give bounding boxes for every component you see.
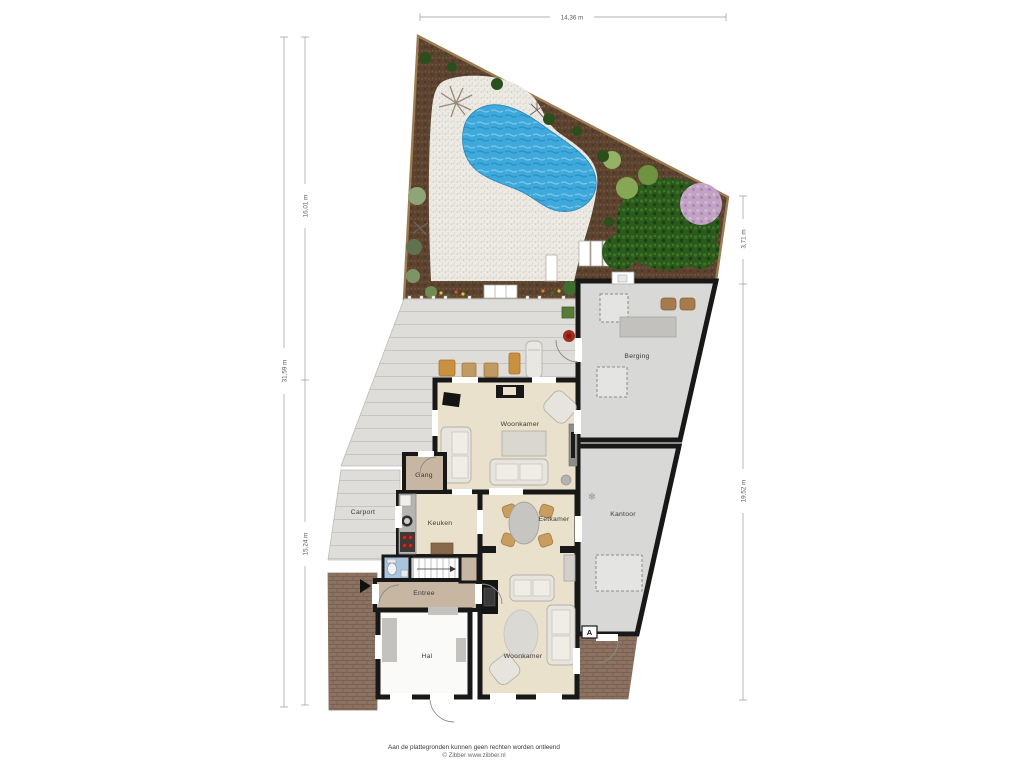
garden [404, 36, 728, 300]
dim-width-top: 14,36 m [561, 15, 584, 22]
dim-right-upper: 3,71 m [740, 229, 747, 248]
dim-left-upper: 16,01 m [302, 195, 309, 218]
section-marker-a-label: A [587, 628, 593, 637]
label-kantoor: Kantoor [610, 511, 636, 518]
divider-wall-right [560, 546, 577, 553]
label-berging: Berging [624, 353, 649, 360]
divider-wall-left [480, 546, 496, 553]
footer-disclaimer: Aan de plattegronden kunnen geen rechten… [388, 744, 560, 751]
bathroom [383, 556, 410, 580]
section-marker-a: A [582, 626, 597, 638]
label-woonkamer-top: Woonkamer [501, 421, 540, 428]
floorplan-page: A ❄ Woonkamer Berging Gang Carport Keuke… [0, 0, 1024, 768]
kantoor-skylight [596, 555, 642, 591]
dim-left-lower: 15,24 m [302, 533, 309, 556]
label-gang: Gang [415, 472, 433, 479]
dim-right-lower: 19,52 m [740, 480, 747, 503]
room-kantoor [578, 446, 679, 634]
patio-bricks [577, 637, 637, 699]
chimney-notch [503, 387, 516, 395]
footer-copyright: © Zibber www.zibber.nl [442, 752, 505, 759]
floorplan-drawing: A ❄ Woonkamer Berging Gang Carport Keuke… [0, 0, 1024, 768]
hvac-icon: ❄ [588, 492, 596, 503]
label-eetkamer: Eetkamer [538, 516, 570, 523]
entree-landing [460, 556, 478, 582]
label-entree: Entree [413, 590, 435, 597]
label-keuken: Keuken [428, 520, 453, 527]
label-carport: Carport [351, 509, 375, 516]
driveway-bricks [328, 573, 377, 710]
staircase [413, 558, 460, 580]
label-woonkamer-bottom: Woonkamer [504, 653, 543, 660]
footer: Aan de plattegronden kunnen geen rechten… [388, 744, 560, 759]
label-hal: Hal [422, 653, 433, 660]
dim-left-total: 31,59 m [281, 360, 288, 383]
